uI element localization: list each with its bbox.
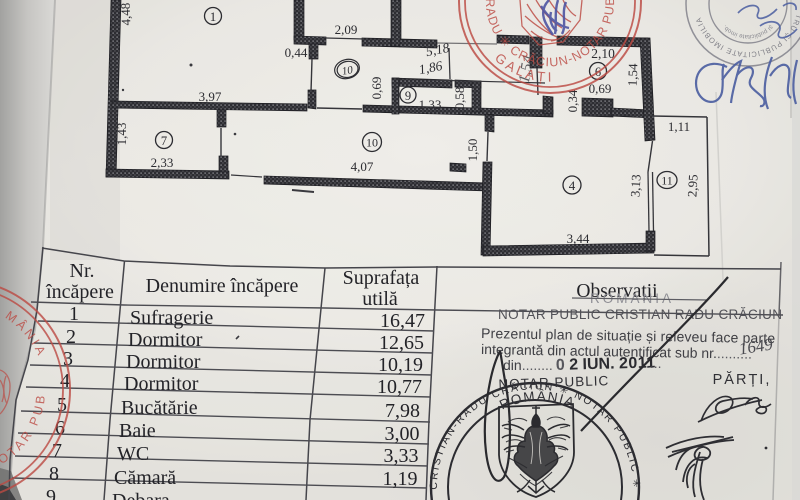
svg-text:4,07: 4,07 — [351, 159, 374, 174]
svg-text:2,33: 2,33 — [151, 155, 174, 170]
svg-text:1,11: 1,11 — [668, 119, 690, 134]
svg-text:7,98: 7,98 — [385, 400, 420, 422]
svg-text:12,65: 12,65 — [379, 332, 424, 354]
svg-text:16,47: 16,47 — [380, 310, 425, 332]
svg-text:1: 1 — [210, 9, 217, 24]
svg-text:Sufragerie: Sufragerie — [130, 307, 213, 329]
svg-text:Dormitor: Dormitor — [124, 373, 199, 395]
svg-text:Bucătărie: Bucătărie — [121, 397, 198, 419]
svg-text:10,77: 10,77 — [377, 376, 422, 398]
svg-text:1,50: 1,50 — [465, 139, 480, 162]
svg-text:3,44: 3,44 — [567, 231, 590, 246]
svg-text:0,58: 0,58 — [452, 87, 467, 110]
svg-text:Cămară: Cămară — [114, 467, 176, 489]
svg-text:3,13: 3,13 — [627, 174, 643, 198]
svg-text:PĂRȚI,: PĂRȚI, — [713, 371, 772, 388]
svg-text:Suprafața: Suprafața — [343, 267, 420, 289]
svg-text:4: 4 — [569, 178, 576, 193]
svg-text:1,33: 1,33 — [419, 97, 442, 112]
svg-text:0 2 IUN. 2011: 0 2 IUN. 2011 — [556, 354, 656, 374]
svg-text:Denumire încăpere: Denumire încăpere — [146, 275, 299, 297]
svg-text:din........: din........ — [503, 357, 553, 373]
svg-text:2: 2 — [66, 326, 76, 348]
svg-text:3,33: 3,33 — [384, 445, 419, 467]
svg-text:3,00: 3,00 — [385, 423, 420, 445]
svg-text:....: .... — [646, 355, 662, 371]
svg-text:10,19: 10,19 — [378, 354, 423, 376]
svg-text:2,95: 2,95 — [684, 174, 700, 198]
svg-text:Baie: Baie — [119, 420, 156, 442]
svg-text:10: 10 — [366, 136, 378, 150]
svg-text:1,54: 1,54 — [625, 63, 641, 87]
svg-text:8: 8 — [49, 463, 59, 485]
svg-text:utilă: utilă — [362, 288, 398, 310]
svg-text:7: 7 — [161, 134, 167, 148]
svg-text:1: 1 — [69, 303, 79, 325]
svg-text:9: 9 — [46, 486, 56, 500]
svg-text:11: 11 — [661, 174, 673, 188]
svg-text:Dormitor: Dormitor — [126, 351, 201, 373]
svg-text:0,34: 0,34 — [565, 89, 580, 112]
svg-text:Nr.: Nr. — [70, 260, 95, 282]
svg-text:Debara: Debara — [112, 490, 170, 500]
svg-text:3,97: 3,97 — [199, 89, 222, 104]
svg-text:1,43: 1,43 — [114, 123, 129, 146]
svg-text:2,09: 2,09 — [335, 22, 358, 37]
svg-text:0,44: 0,44 — [285, 45, 308, 60]
svg-text:NOTAR PUBLIC CRISTIAN RADU CRĂ: NOTAR PUBLIC CRISTIAN RADU CRĂCIUN — [498, 307, 782, 322]
svg-text:WC: WC — [117, 443, 149, 465]
svg-text:încăpere: încăpere — [45, 281, 114, 303]
svg-text:9: 9 — [405, 89, 411, 103]
svg-text:Dormitor: Dormitor — [128, 329, 203, 351]
svg-text:0,69: 0,69 — [369, 77, 384, 100]
svg-text:1,19: 1,19 — [383, 468, 418, 490]
